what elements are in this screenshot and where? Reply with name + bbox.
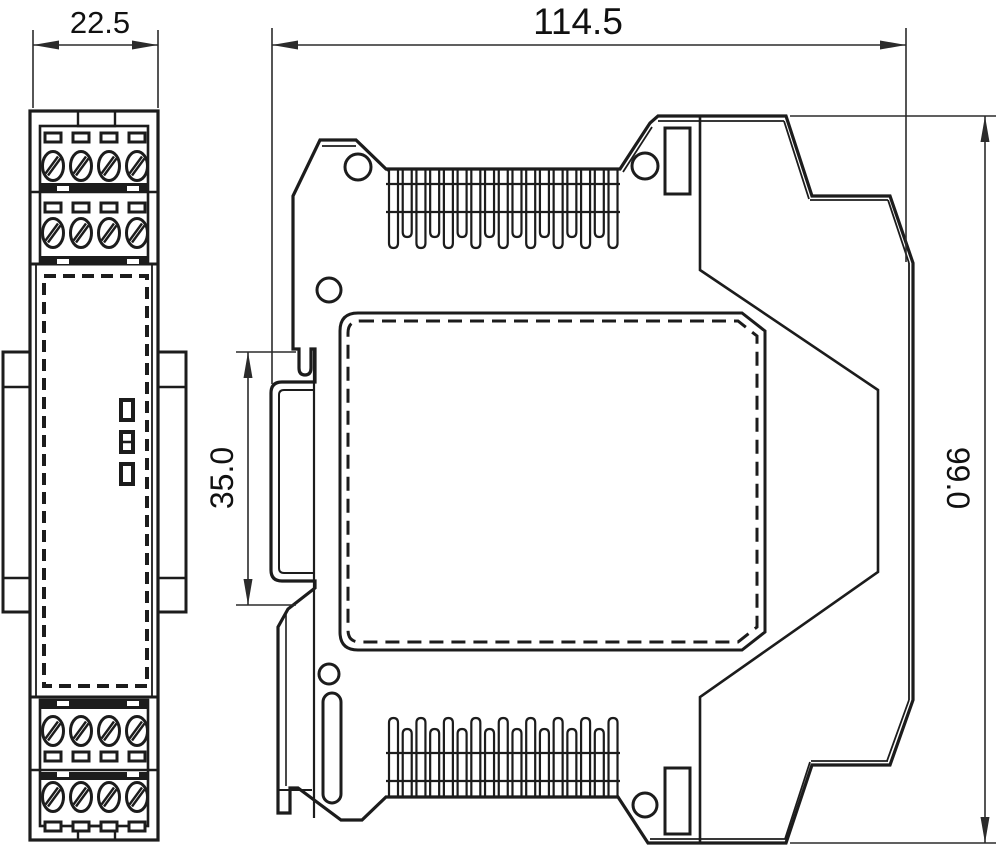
led-indicator	[121, 400, 133, 420]
led-indicators	[121, 400, 133, 484]
side-view	[271, 116, 913, 843]
wire-entry	[73, 752, 89, 761]
latch-slot-bottom	[665, 768, 690, 834]
terminal-screw	[127, 717, 148, 746]
terminal-screw	[43, 717, 64, 746]
led-indicator	[121, 464, 133, 484]
terminal-screw	[99, 152, 120, 181]
terminal-screw	[127, 783, 148, 812]
clip-slot	[323, 693, 341, 803]
terminal-screw	[127, 219, 148, 248]
screw-hole	[633, 793, 657, 817]
terminal-screw	[71, 219, 92, 248]
technical-drawing: 22.5 114.5 99.0 35.0	[0, 0, 1000, 856]
arrowhead	[981, 817, 990, 843]
terminal-screw	[43, 152, 64, 181]
wire-entry	[45, 133, 61, 142]
wire-entry	[101, 752, 117, 761]
terminal-screw	[43, 219, 64, 248]
wire-entry	[129, 203, 145, 212]
arrowhead	[244, 352, 253, 378]
arrowhead	[272, 41, 298, 50]
screw-hole	[345, 154, 371, 180]
terminal-screw	[99, 783, 120, 812]
wire-entry	[129, 133, 145, 142]
latch-slot-top	[665, 128, 690, 194]
arrowhead	[244, 579, 253, 605]
wire-entry	[101, 133, 117, 142]
dimension-label-din-rail: 35.0	[204, 447, 240, 509]
wire-entry	[129, 752, 145, 761]
terminal-screw	[71, 717, 92, 746]
wire-entry	[73, 203, 89, 212]
terminal-screw	[71, 152, 92, 181]
terminal-screw	[127, 152, 148, 181]
dimension-front-width: 22.5	[33, 5, 158, 108]
screw-hole	[632, 153, 658, 179]
terminal-screw	[71, 783, 92, 812]
wire-entry	[129, 822, 145, 831]
wire-entry	[73, 133, 89, 142]
dimension-label-side-height: 99.0	[940, 447, 976, 509]
terminal-screw	[43, 783, 64, 812]
front-view	[3, 111, 186, 840]
arrowhead	[981, 116, 990, 142]
wire-entry	[45, 752, 61, 761]
dimension-label-front-width: 22.5	[70, 5, 130, 40]
wire-entry	[101, 822, 117, 831]
wire-entry	[101, 203, 117, 212]
front-flange-left	[3, 352, 30, 612]
terminal-screw	[99, 717, 120, 746]
arrowhead	[132, 41, 158, 50]
wire-entry	[45, 203, 61, 212]
front-top-notch	[78, 111, 115, 126]
front-flange-right	[158, 352, 186, 612]
arrowhead	[880, 41, 906, 50]
terminal-screw	[99, 219, 120, 248]
screw-hole	[317, 278, 341, 302]
screw-hole	[319, 664, 339, 684]
wire-entry	[45, 822, 61, 831]
arrowhead	[33, 41, 59, 50]
side-body-outline	[271, 116, 913, 843]
wire-entry	[73, 822, 89, 831]
technical-drawing-page: 22.5 114.5 99.0 35.0	[0, 0, 1000, 856]
dimension-label-side-width: 114.5	[533, 1, 623, 42]
